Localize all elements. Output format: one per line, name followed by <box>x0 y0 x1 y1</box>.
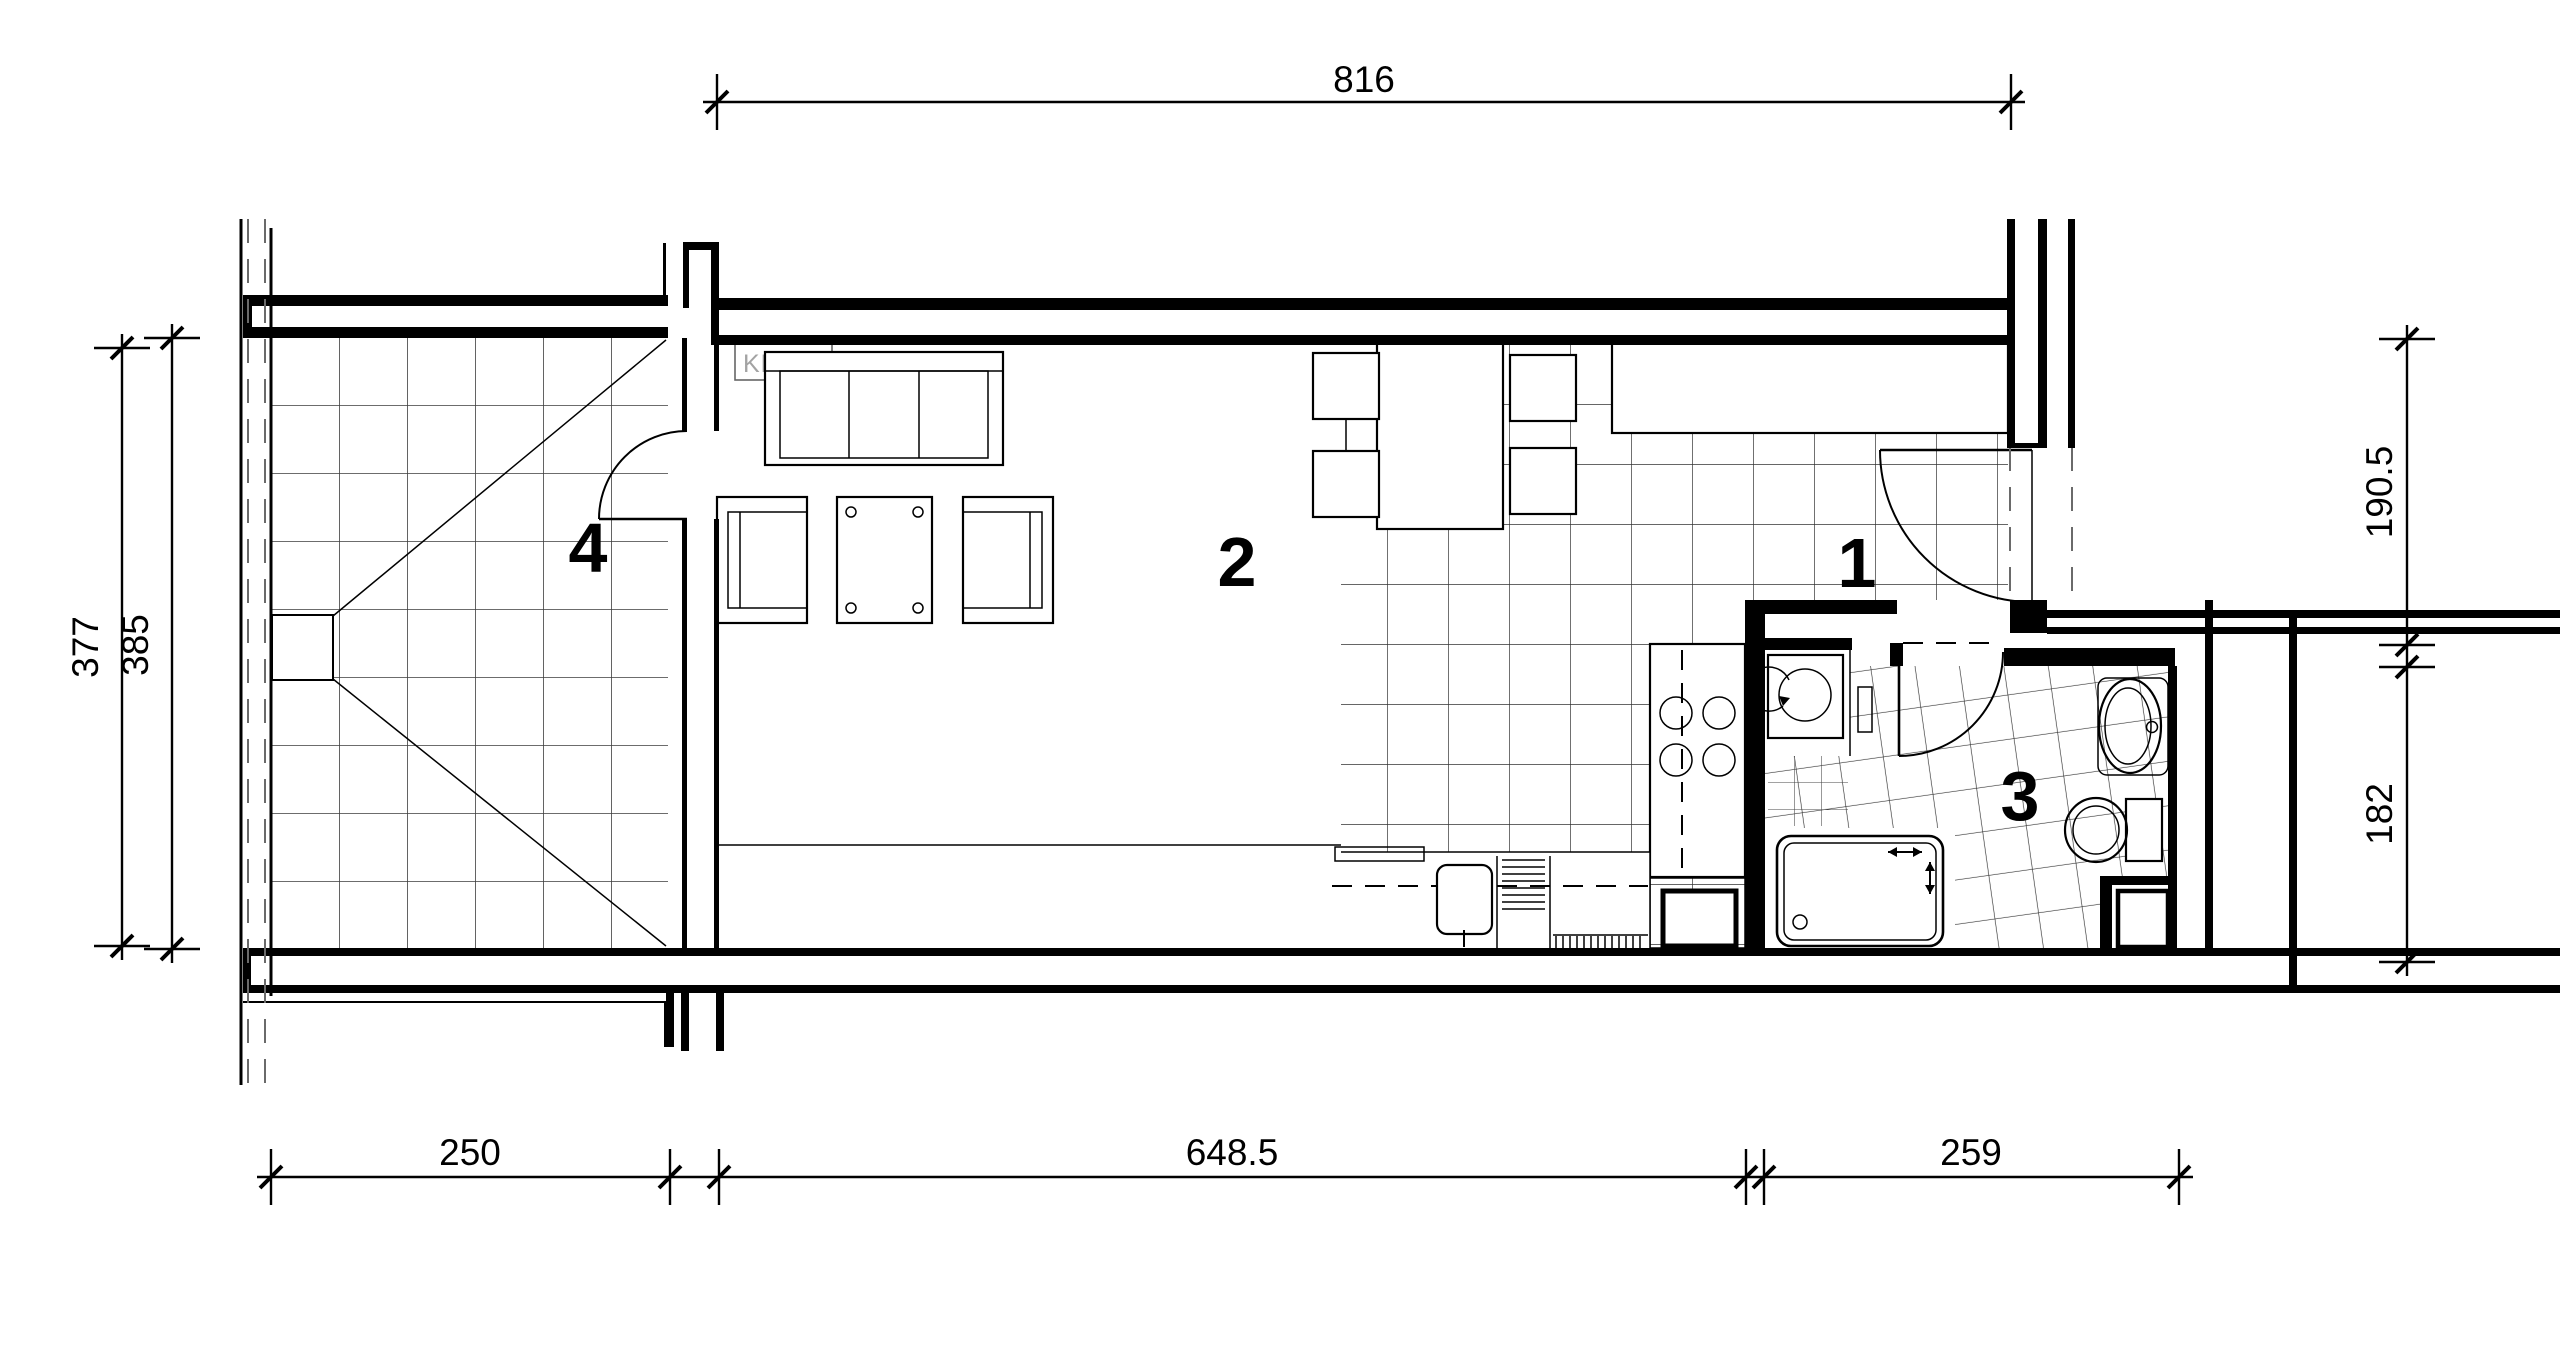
dining-table-icon <box>1377 340 1503 529</box>
chair-icon <box>1510 355 1576 421</box>
bathtub-icon <box>1765 828 1955 948</box>
kitchen-lower-counter <box>1332 847 1650 948</box>
dim-label-385: 385 <box>115 614 156 676</box>
dimension-left: 377 385 <box>65 324 200 963</box>
dim-label-182: 182 <box>2359 783 2400 845</box>
stove-icon <box>1650 644 1745 877</box>
floor-plan-drawing: KLIMA <box>0 0 2560 1362</box>
dimension-bottom: 250 648.5 259 <box>257 1132 2193 1205</box>
dim-label-648-5: 648.5 <box>1186 1132 1279 1173</box>
dim-label-190-5: 190.5 <box>2359 446 2400 539</box>
room-label-3: 3 <box>2001 757 2040 835</box>
kitchen-sink-icon <box>1437 865 1492 947</box>
chair-icon <box>1313 353 1379 419</box>
sofa-icon <box>765 352 1003 465</box>
dim-label-816: 816 <box>1333 59 1395 100</box>
dimension-right: 190.5 182 <box>2359 325 2435 976</box>
chair-icon <box>1510 448 1576 514</box>
floor-plan-canvas: KLIMA <box>0 0 2560 1362</box>
laundry-tile-patch <box>1768 756 1848 826</box>
room-label-2: 2 <box>1218 523 1257 601</box>
service-shaft <box>2100 876 2175 948</box>
terrace-room-4 <box>272 338 687 948</box>
armchair-right-icon <box>963 497 1053 623</box>
oven-icon <box>1650 878 1745 948</box>
room-label-1: 1 <box>1838 524 1877 602</box>
dimension-top: 816 <box>703 59 2025 130</box>
room-label-4: 4 <box>569 509 608 587</box>
dim-label-377: 377 <box>65 616 106 678</box>
dim-label-250: 250 <box>439 1132 501 1173</box>
kitchen-counter-top <box>1612 343 2008 433</box>
chair-icon <box>1313 451 1379 517</box>
armchair-left-icon <box>717 497 807 623</box>
bathroom-room-3 <box>1747 643 2175 948</box>
coffee-table-icon <box>837 497 932 623</box>
terrace-drain-icon <box>272 615 333 680</box>
dim-label-259: 259 <box>1940 1132 2002 1173</box>
